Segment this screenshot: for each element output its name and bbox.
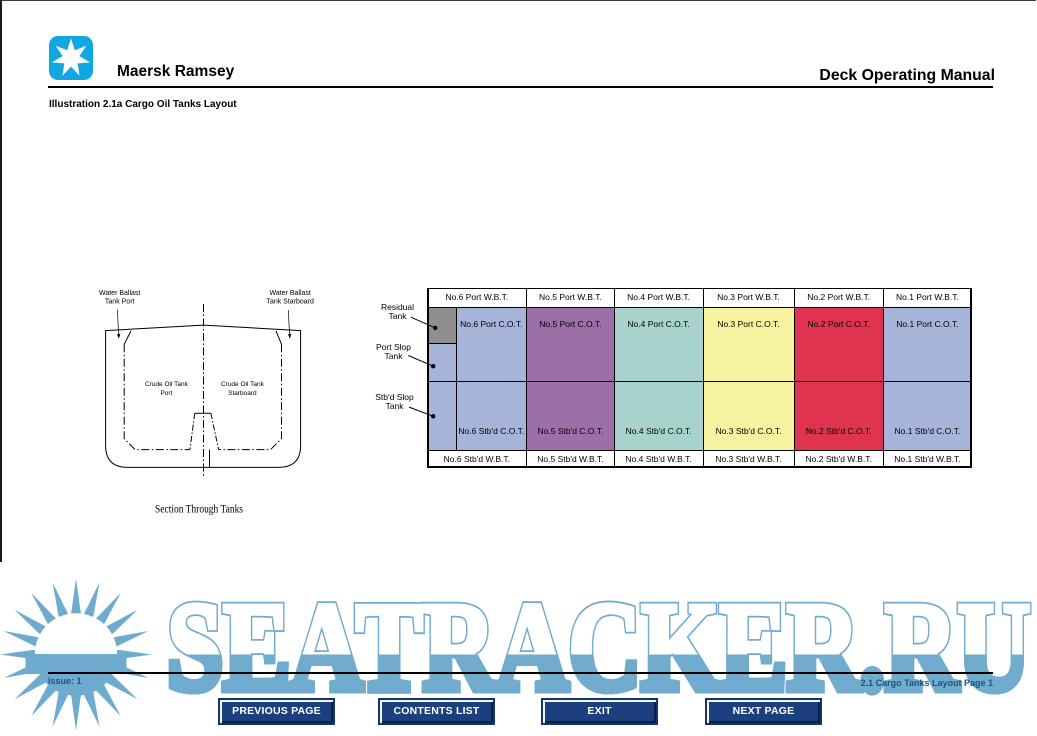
svg-text:Crude Oil Tank: Crude Oil Tank bbox=[145, 381, 189, 388]
svg-text:Port: Port bbox=[160, 390, 172, 397]
svg-text:Crude Oil Tank: Crude Oil Tank bbox=[221, 381, 265, 388]
svg-text:Tank Port: Tank Port bbox=[105, 299, 135, 306]
svg-text:Water Ballast: Water Ballast bbox=[270, 290, 311, 297]
svg-text:Starboard: Starboard bbox=[228, 390, 257, 397]
svg-text:Tank Starboard: Tank Starboard bbox=[266, 299, 314, 306]
svg-text:Water Ballast: Water Ballast bbox=[99, 290, 140, 297]
svg-text:Section Through Tanks: Section Through Tanks bbox=[155, 504, 243, 516]
